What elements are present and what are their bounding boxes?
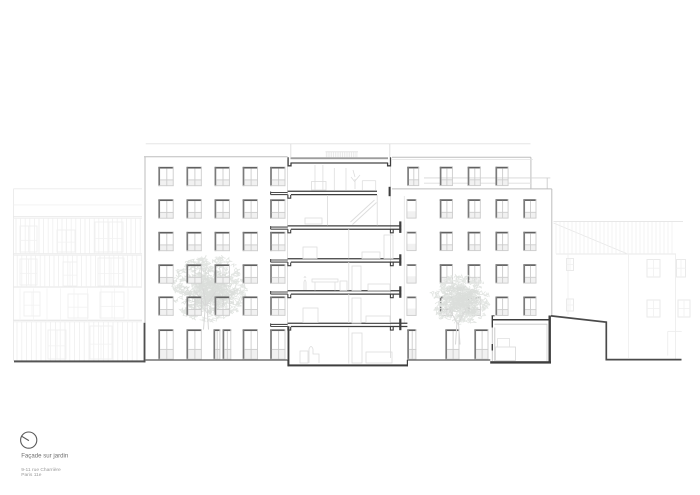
svg-text:Façade sur jardin: Façade sur jardin <box>21 453 68 460</box>
svg-text:Paris 11e: Paris 11e <box>21 472 42 478</box>
